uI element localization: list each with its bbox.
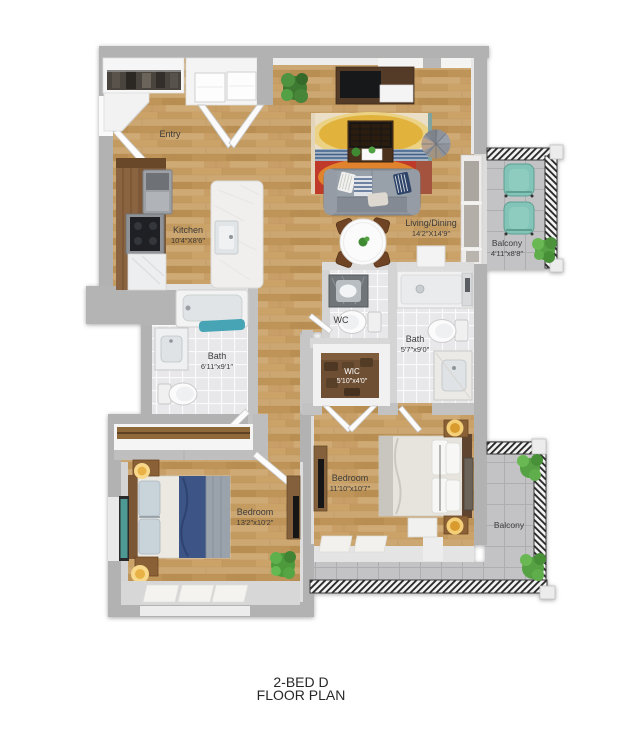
svg-text:11′10″x10′7″: 11′10″x10′7″ xyxy=(330,484,371,493)
svg-text:Bedroom: Bedroom xyxy=(237,507,274,517)
svg-text:4′11″x8′8″: 4′11″x8′8″ xyxy=(491,249,524,258)
svg-text:FLOOR PLAN: FLOOR PLAN xyxy=(257,687,346,703)
svg-text:6′11″x9′1″: 6′11″x9′1″ xyxy=(201,362,234,371)
svg-text:Bath: Bath xyxy=(208,351,227,361)
svg-text:10′4″X8′6″: 10′4″X8′6″ xyxy=(171,236,205,245)
svg-text:Kitchen: Kitchen xyxy=(173,225,203,235)
svg-text:Entry: Entry xyxy=(159,129,181,139)
svg-text:Living/Dining: Living/Dining xyxy=(405,218,457,228)
svg-text:5′10″x4′0″: 5′10″x4′0″ xyxy=(337,378,368,385)
svg-text:Balcony: Balcony xyxy=(492,238,523,248)
svg-text:Bedroom: Bedroom xyxy=(332,473,369,483)
svg-text:14′2″X14′9″: 14′2″X14′9″ xyxy=(412,229,450,238)
svg-text:WC: WC xyxy=(334,315,349,325)
svg-text:Balcony: Balcony xyxy=(494,520,525,530)
svg-text:5′7″x9′0″: 5′7″x9′0″ xyxy=(401,345,430,354)
svg-text:13′2″x10′2″: 13′2″x10′2″ xyxy=(237,518,274,527)
svg-text:WIC: WIC xyxy=(344,367,360,376)
svg-text:Bath: Bath xyxy=(406,334,425,344)
